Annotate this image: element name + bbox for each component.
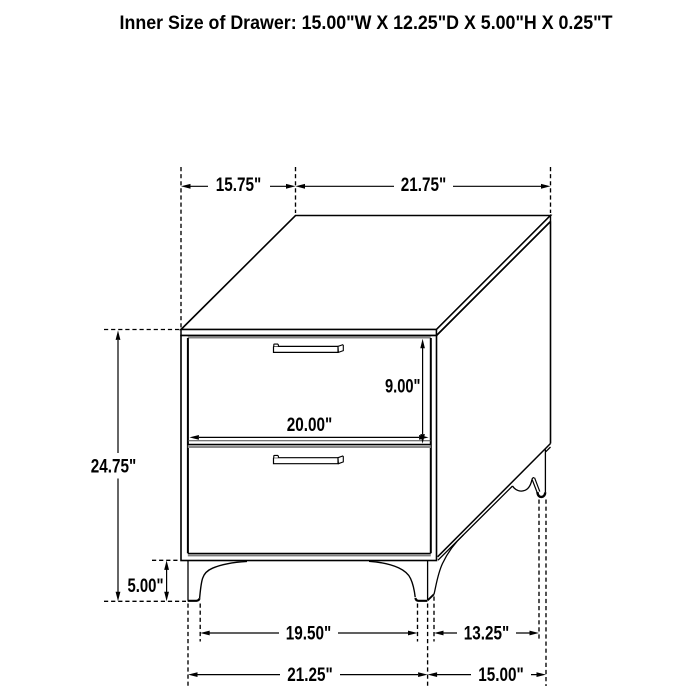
svg-text:24.75": 24.75" (91, 455, 137, 477)
svg-text:15.00": 15.00" (478, 664, 524, 686)
svg-text:20.00": 20.00" (287, 414, 333, 436)
svg-text:21.75": 21.75" (401, 174, 447, 196)
svg-text:Inner Size of Drawer: 15.00"W: Inner Size of Drawer: 15.00"W X 12.25"D … (120, 12, 613, 34)
svg-text:5.00": 5.00" (128, 575, 164, 597)
svg-text:21.25": 21.25" (287, 664, 333, 686)
svg-text:19.50": 19.50" (286, 623, 332, 645)
svg-text:13.25": 13.25" (464, 623, 510, 645)
svg-text:15.75": 15.75" (216, 174, 262, 196)
svg-text:9.00": 9.00" (385, 375, 421, 397)
